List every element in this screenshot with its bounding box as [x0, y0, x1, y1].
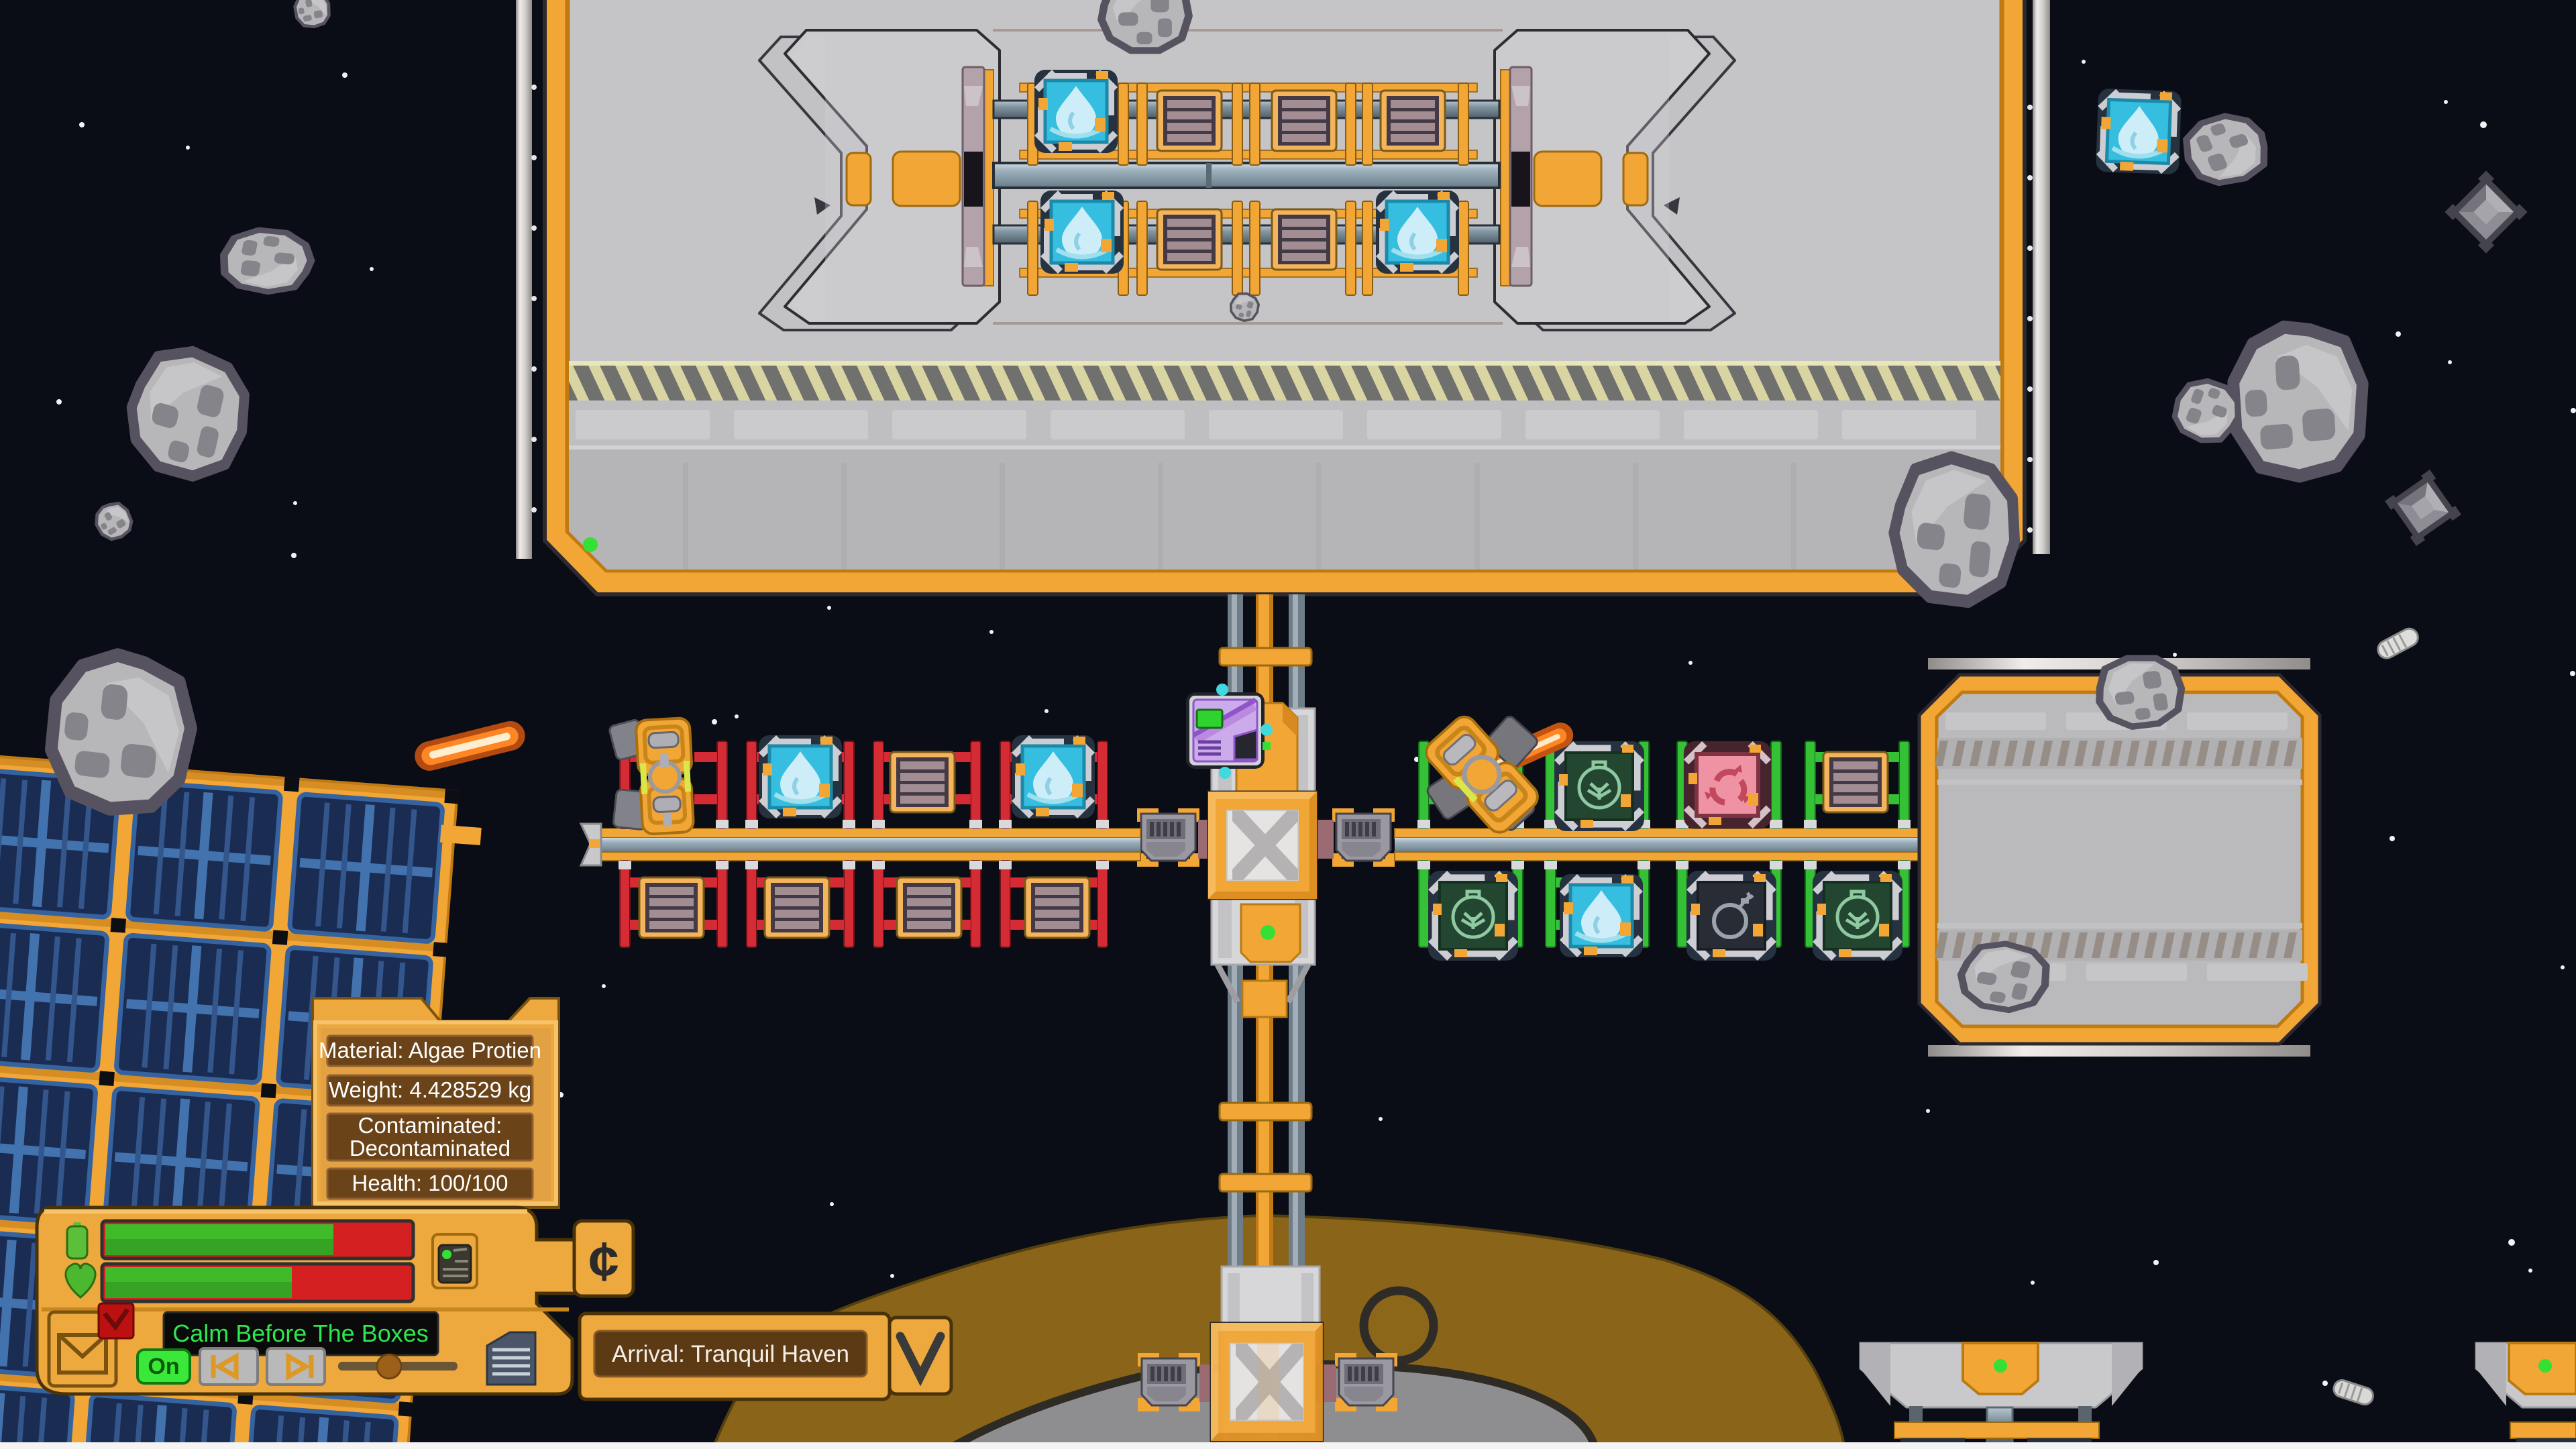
svg-text:On: On: [148, 1354, 179, 1379]
svg-text:Calm Before The Boxes: Calm Before The Boxes: [172, 1320, 429, 1347]
svg-text:Weight: 4.428529 kg: Weight: 4.428529 kg: [329, 1077, 531, 1102]
svg-text:Contaminated:: Contaminated:: [358, 1113, 502, 1138]
svg-text:Arrival: Tranquil Haven: Arrival: Tranquil Haven: [612, 1341, 849, 1367]
svg-text:Health: 100/100: Health: 100/100: [352, 1171, 508, 1195]
svg-text:Material: Algae Protien: Material: Algae Protien: [319, 1038, 541, 1063]
svg-text:¢: ¢: [588, 1231, 619, 1292]
svg-text:Decontaminated: Decontaminated: [350, 1136, 511, 1161]
